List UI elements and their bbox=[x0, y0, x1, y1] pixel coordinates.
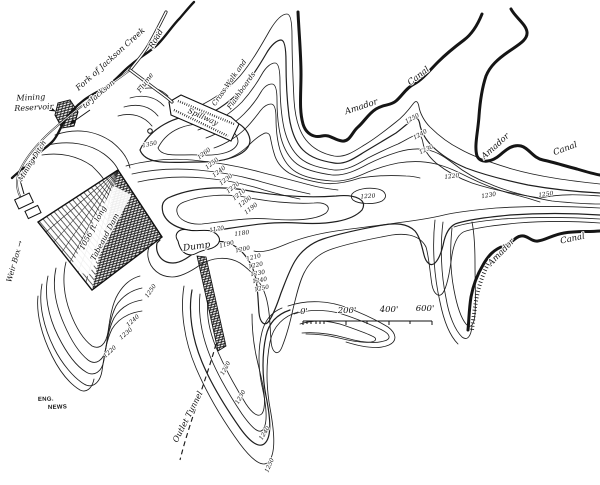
contour-elevation-label: 1230 bbox=[419, 144, 435, 156]
contour-elevation-label: 1240 bbox=[252, 277, 268, 286]
mining-ditch-label: Mining Ditch bbox=[16, 139, 48, 183]
contour-elevation-label: 1250 bbox=[254, 284, 270, 293]
contour-elevation-label: 1180 bbox=[234, 230, 250, 238]
contour-elevation-label: 1250 bbox=[144, 283, 158, 299]
feature-labels: MiningReservoirFork of Jackson CreekRoad… bbox=[4, 26, 586, 444]
contour-elevation-label: 1240 bbox=[126, 314, 141, 329]
contour-elevation-label: 1250 bbox=[264, 457, 276, 473]
contour-elevation-label: 1220 bbox=[103, 345, 118, 360]
amador-canal-north bbox=[298, 12, 482, 141]
credit-line-1: ENG. bbox=[38, 396, 54, 403]
amador-canal-north-label-word2: Canal bbox=[406, 65, 432, 88]
scale-label-0: 0' bbox=[300, 307, 308, 317]
contour-elevation-label: 1220 bbox=[360, 193, 376, 200]
canal-hatch-ticks bbox=[472, 264, 488, 330]
scale-bar: 0' 200' 400' 600' bbox=[300, 304, 434, 325]
contour-elevation-label: 1220 bbox=[220, 360, 232, 376]
contour-elevation-label: 1230 bbox=[119, 327, 135, 341]
contour-elevation-label: 1260 bbox=[197, 147, 213, 161]
scale-label-400: 400' bbox=[379, 305, 399, 315]
scale-label-200: 200' bbox=[337, 306, 357, 316]
scale-label-600: 600' bbox=[416, 304, 435, 314]
weir-box-structure bbox=[15, 180, 41, 219]
contour-elevation-label: 1240 bbox=[259, 425, 272, 441]
mining-reservoir-label-line2: Reservoir bbox=[13, 102, 55, 113]
mining-reservoir-label-line1: Mining bbox=[15, 92, 45, 103]
credit-stamp: ENG. NEWS bbox=[38, 396, 67, 411]
gate-structure bbox=[148, 129, 153, 134]
contour-elevation-labels: 1350126012501240123012201210120011901170… bbox=[103, 113, 554, 474]
map-canvas: 0' 200' 400' 600' ENG. NEWS 135012601250… bbox=[0, 0, 600, 485]
contour-elevation-label: 1170 bbox=[209, 226, 225, 235]
tabeaud-reservoir-topographic-map: 0' 200' 400' 600' ENG. NEWS 135012601250… bbox=[0, 0, 600, 485]
contour-elevation-label: 1230 bbox=[481, 192, 497, 201]
credit-line-2: NEWS bbox=[48, 404, 67, 411]
amador-canal-southeast bbox=[468, 231, 600, 330]
contour-elevation-label: 1250 bbox=[538, 191, 554, 199]
weir-box-label: Weir Box → bbox=[4, 239, 24, 283]
tabeaud-dam bbox=[38, 170, 162, 290]
amador-canal-north-label-word1: Amador bbox=[343, 97, 380, 118]
contour-elevation-label: 1250 bbox=[405, 113, 421, 125]
amador-canal-east-label-word2: Canal bbox=[552, 140, 579, 158]
contour-elevation-label: 1220 bbox=[444, 173, 460, 181]
outlet-tunnel-label: Outlet Tunnel bbox=[171, 389, 205, 443]
